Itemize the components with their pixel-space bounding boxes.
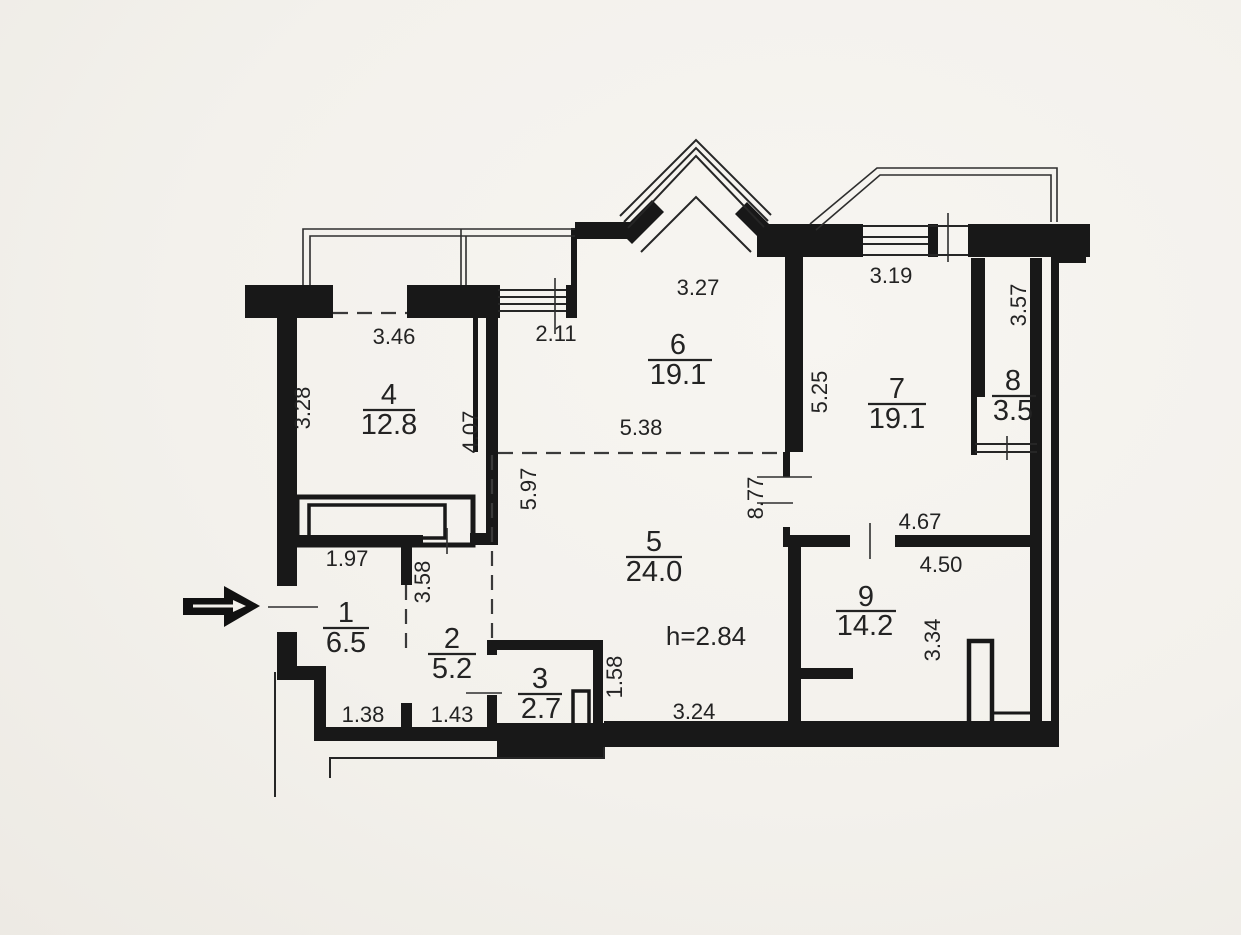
room-8-area: 3.5 bbox=[993, 395, 1033, 427]
floor-plan-drawing: 1 6.5 2 5.2 3 2.7 4 12.8 5 24.0 6 19.1 bbox=[0, 0, 1241, 935]
window-3-19 bbox=[863, 213, 968, 262]
dim-4-50: 4.50 bbox=[920, 552, 963, 577]
room-9-number: 9 bbox=[858, 581, 874, 613]
dim-3-27: 3.27 bbox=[677, 275, 720, 300]
room-4-number: 4 bbox=[381, 379, 397, 411]
dim-3-19: 3.19 bbox=[870, 263, 913, 288]
room-5-number: 5 bbox=[646, 526, 662, 558]
room-label-6: 6 19.1 bbox=[648, 329, 712, 391]
dim-3-57: 3.57 bbox=[1006, 284, 1031, 327]
loggia-window bbox=[975, 436, 1037, 460]
dim-3-28: 3.28 bbox=[290, 387, 315, 430]
dim-3-46: 3.46 bbox=[373, 324, 416, 349]
dim-4-67: 4.67 bbox=[899, 509, 942, 534]
dim-5-38: 5.38 bbox=[620, 415, 663, 440]
dim-4-07: 4.07 bbox=[458, 411, 483, 454]
room-label-5: 5 24.0 bbox=[626, 526, 682, 588]
room-label-2: 2 5.2 bbox=[428, 623, 476, 685]
room-7-area: 19.1 bbox=[869, 403, 925, 435]
balcony-left-railing bbox=[303, 229, 575, 285]
room-label-1: 1 6.5 bbox=[323, 597, 369, 659]
room-8-number: 8 bbox=[1005, 365, 1021, 397]
dim-3-24: 3.24 bbox=[673, 699, 716, 724]
room-2-number: 2 bbox=[444, 623, 460, 655]
room-3-area: 2.7 bbox=[521, 693, 561, 725]
room-label-8: 8 3.5 bbox=[992, 365, 1036, 427]
room-label-4: 4 12.8 bbox=[361, 379, 417, 441]
room-4-area: 12.8 bbox=[361, 409, 417, 441]
room-1-number: 1 bbox=[338, 597, 354, 629]
room-6-area: 19.1 bbox=[650, 359, 706, 391]
dim-1-38: 1.38 bbox=[342, 702, 385, 727]
ceiling-height-label: h=2.84 bbox=[666, 621, 746, 651]
dim-5-25: 5.25 bbox=[807, 371, 832, 414]
room-6-number: 6 bbox=[670, 329, 686, 361]
dim-1-97: 1.97 bbox=[326, 546, 369, 571]
room-label-9: 9 14.2 bbox=[836, 581, 896, 642]
dim-1-43: 1.43 bbox=[431, 702, 474, 727]
dim-2-11: 2.11 bbox=[535, 321, 576, 346]
walls bbox=[245, 200, 1090, 758]
room-label-3: 3 2.7 bbox=[518, 663, 562, 725]
room-7-number: 7 bbox=[889, 373, 905, 405]
dashed-openings bbox=[333, 313, 785, 648]
dim-8-77: 8.77 bbox=[743, 477, 768, 520]
room-1-area: 6.5 bbox=[326, 627, 366, 659]
entrance-arrow bbox=[183, 586, 260, 627]
balcony-right-railing bbox=[810, 168, 1057, 230]
dim-1-58: 1.58 bbox=[602, 656, 627, 699]
floor-plan-page: 1 6.5 2 5.2 3 2.7 4 12.8 5 24.0 6 19.1 bbox=[0, 0, 1241, 935]
room-3-number: 3 bbox=[532, 663, 548, 695]
room-9-area: 14.2 bbox=[837, 610, 893, 642]
dim-5-97: 5.97 bbox=[516, 468, 541, 511]
bay-window bbox=[620, 140, 771, 252]
room-5-area: 24.0 bbox=[626, 556, 682, 588]
dim-3-58: 3.58 bbox=[410, 561, 435, 604]
room-label-7: 7 19.1 bbox=[868, 373, 926, 435]
dimension-ticks bbox=[268, 477, 870, 693]
dim-3-34: 3.34 bbox=[920, 619, 945, 662]
room-2-area: 5.2 bbox=[432, 653, 472, 685]
